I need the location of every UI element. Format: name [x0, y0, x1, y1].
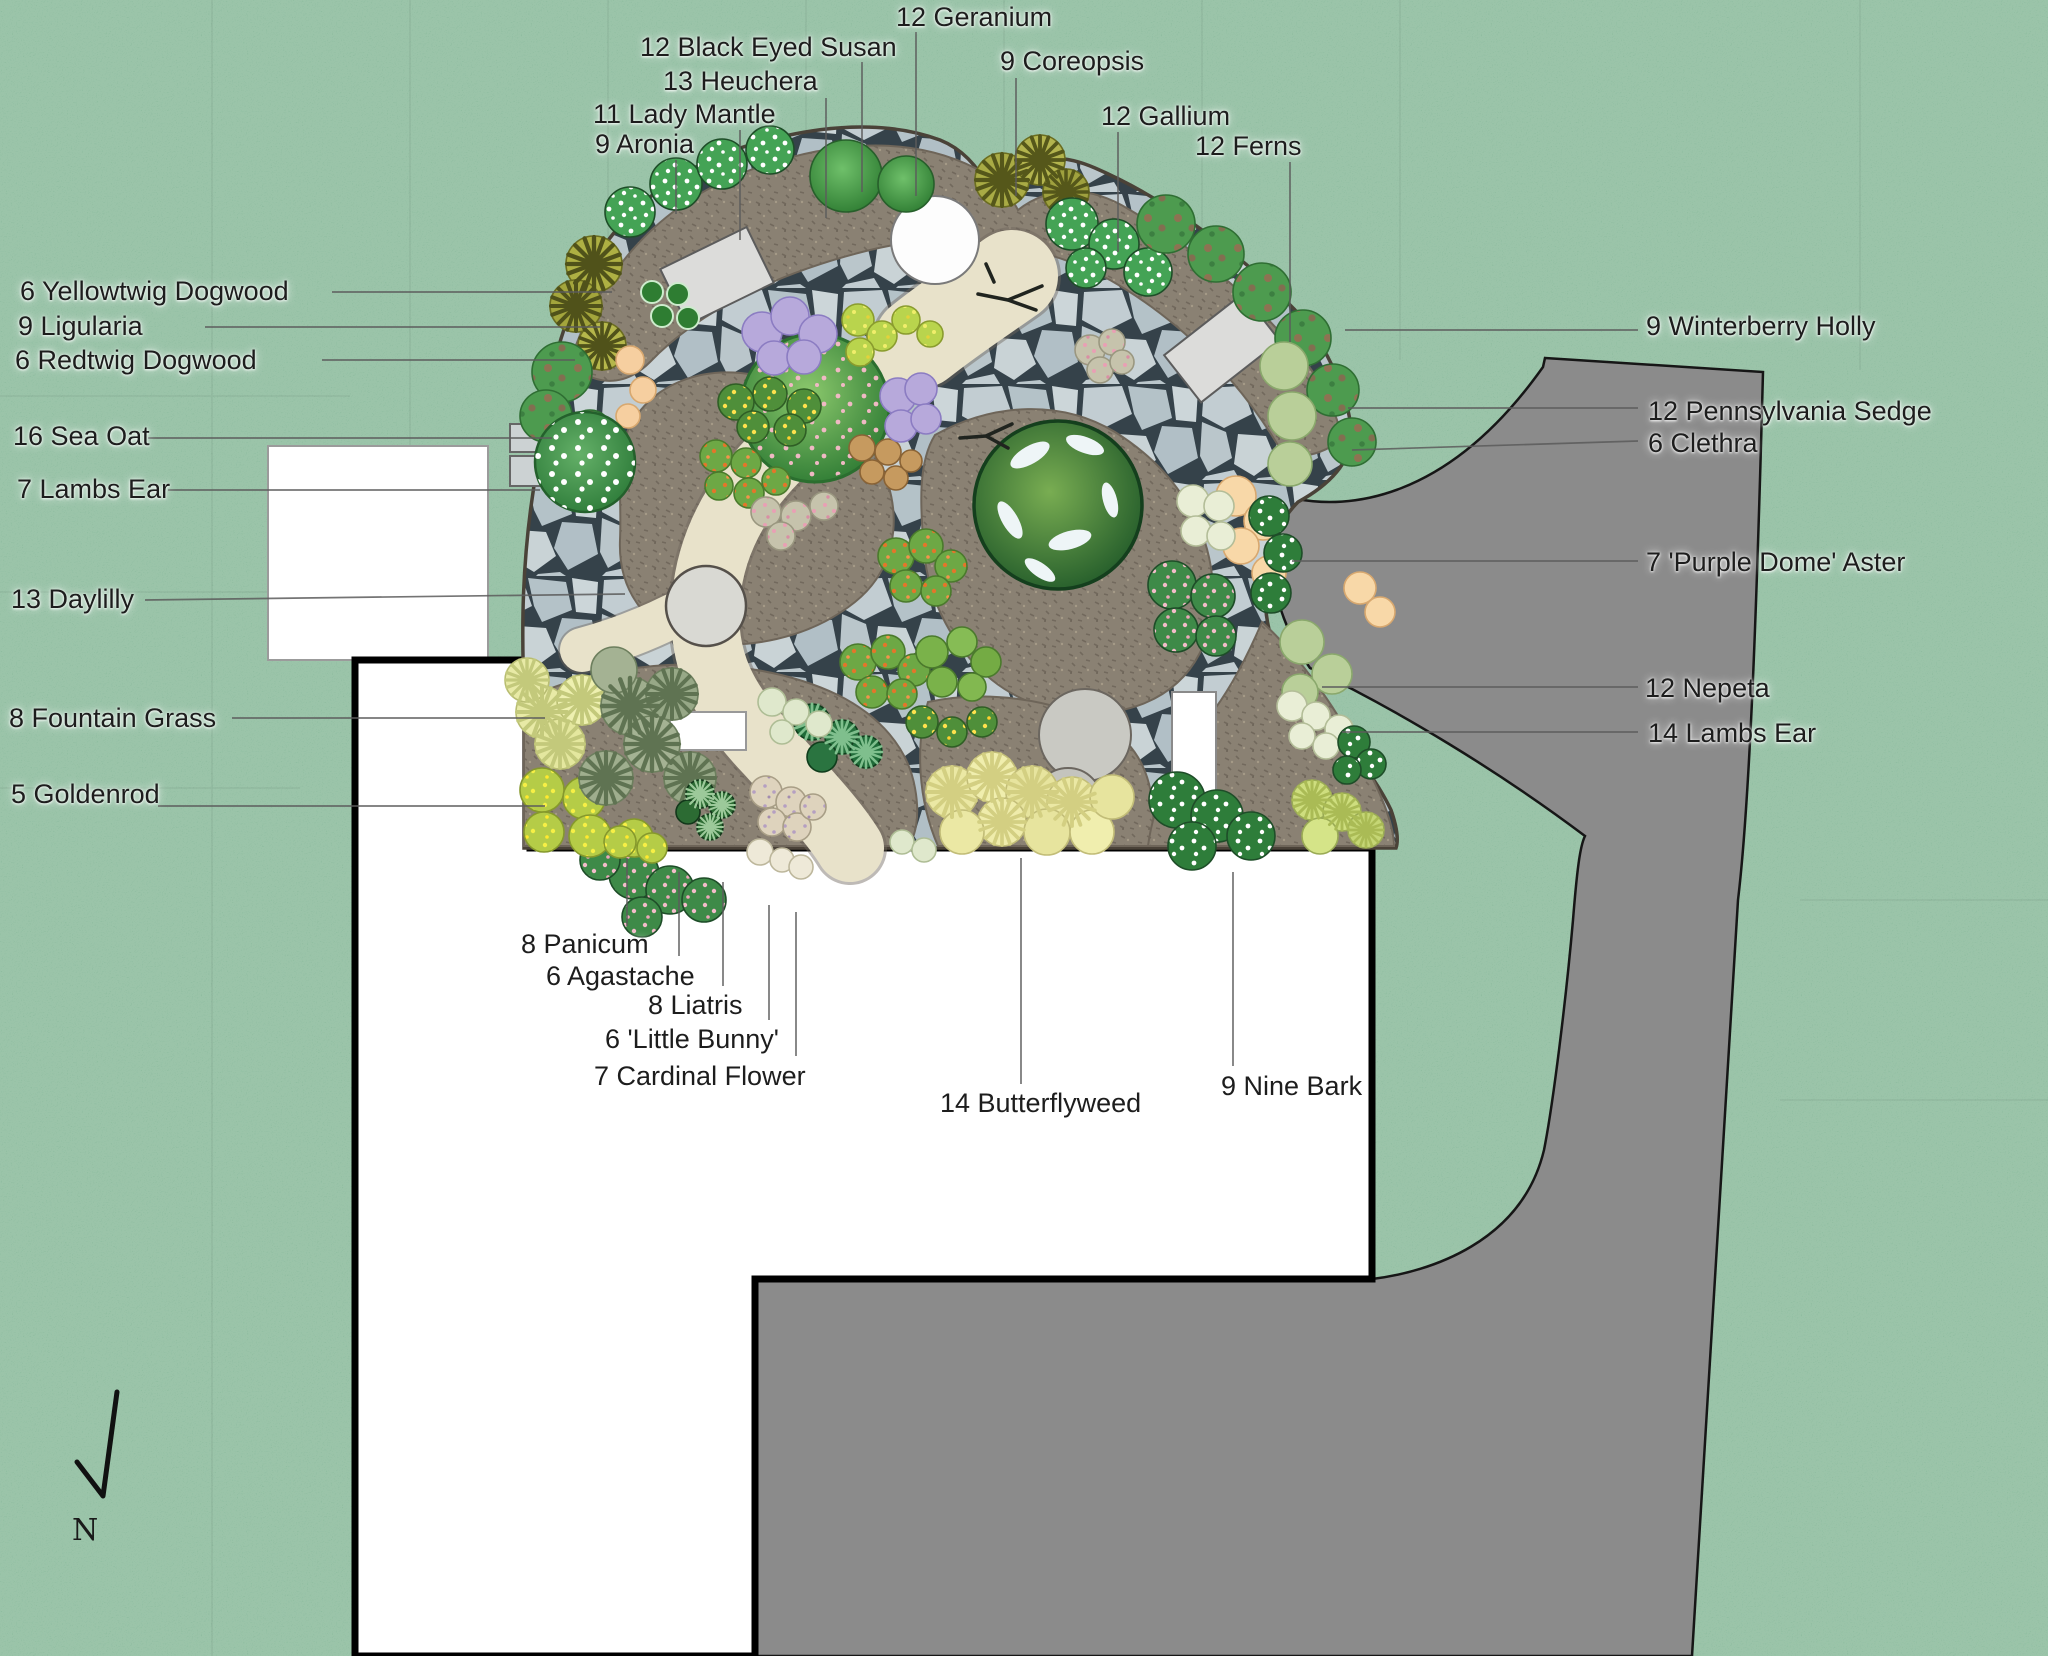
label-clethra: 6 Clethra — [1648, 428, 1758, 458]
label-coreopsis: 9 Coreopsis — [1000, 46, 1144, 76]
sea-oat-plant — [535, 412, 635, 512]
boulder — [1039, 689, 1131, 781]
label-black-eyed-susan: 12 Black Eyed Susan — [640, 32, 897, 62]
label-nepeta: 12 Nepeta — [1645, 673, 1770, 703]
feature-tree-right — [974, 421, 1142, 589]
label-gallium: 12 Gallium — [1101, 101, 1230, 131]
label-lady-mantle: 11 Lady Mantle — [593, 99, 776, 129]
label-little-bunny: 6 'Little Bunny' — [605, 1024, 779, 1054]
label-heuchera: 13 Heuchera — [663, 66, 818, 96]
label-nine-bark: 9 Nine Bark — [1221, 1071, 1362, 1101]
label-ferns: 12 Ferns — [1195, 131, 1302, 161]
plan-drawing — [0, 0, 2048, 1656]
label-purple-dome-aster: 7 'Purple Dome' Aster — [1646, 547, 1905, 577]
millstone-circle — [666, 566, 746, 646]
label-winterberry-holly: 9 Winterberry Holly — [1646, 311, 1876, 341]
label-lambs-ear-14: 14 Lambs Ear — [1648, 718, 1816, 748]
label-butterflyweed: 14 Butterflyweed — [940, 1088, 1141, 1118]
label-cardinal-flower: 7 Cardinal Flower — [594, 1061, 806, 1091]
house-wing — [268, 446, 488, 660]
label-yellowtwig-dogwood: 6 Yellowtwig Dogwood — [20, 276, 289, 306]
label-fountain-grass: 8 Fountain Grass — [9, 703, 216, 733]
fern-plants — [1260, 342, 1316, 486]
label-redtwig-dogwood: 6 Redtwig Dogwood — [15, 345, 257, 375]
label-pennsylvania-sedge: 12 Pennsylvania Sedge — [1648, 396, 1932, 426]
label-panicum: 8 Panicum — [521, 929, 649, 959]
label-aronia: 9 Aronia — [595, 129, 694, 159]
label-lambs-ear-7: 7 Lambs Ear — [17, 474, 170, 504]
label-ligularia: 9 Ligularia — [18, 311, 143, 341]
label-goldenrod: 5 Goldenrod — [11, 779, 160, 809]
label-sea-oat: 16 Sea Oat — [13, 421, 150, 451]
purple-cluster-2 — [880, 373, 941, 442]
north-label: N — [72, 1513, 98, 1548]
label-geranium: 12 Geranium — [896, 2, 1052, 32]
label-liatris: 8 Liatris — [648, 990, 743, 1020]
label-agastache: 6 Agastache — [546, 961, 695, 991]
landscape-plan: 12 Geranium 12 Black Eyed Susan 13 Heuch… — [0, 0, 2048, 1656]
label-daylilly: 13 Daylilly — [11, 584, 134, 614]
